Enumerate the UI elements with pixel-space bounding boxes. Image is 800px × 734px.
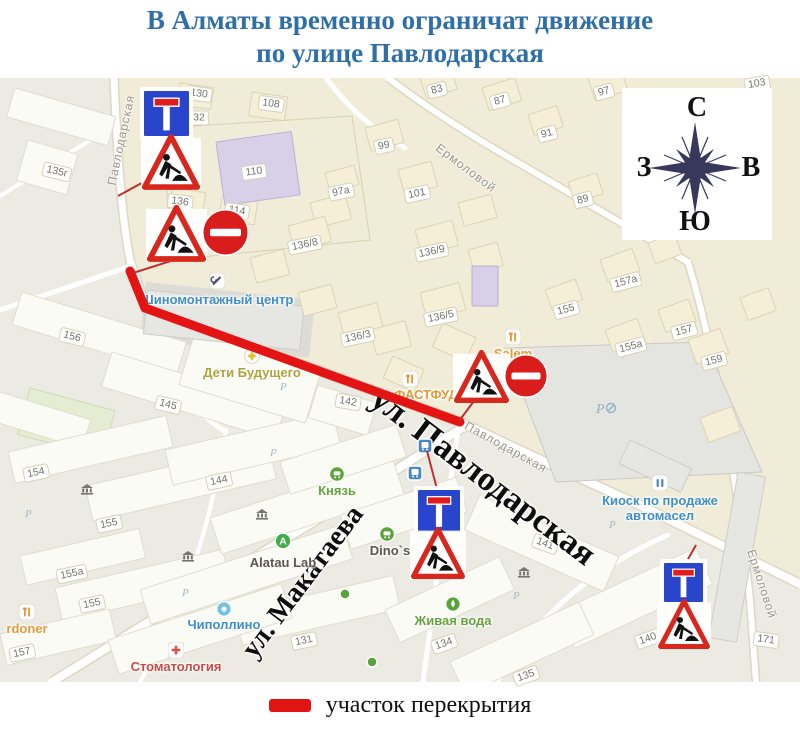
- compass-rose: С Ю З В: [622, 88, 772, 240]
- closure-swatch: [269, 699, 311, 712]
- compass-south-label: Ю: [679, 206, 711, 238]
- legend-label: участок перекрытия: [326, 692, 532, 719]
- title-line-1: В Алматы временно ограничат движение: [0, 4, 800, 37]
- infographic: В Алматы временно ограничат движение по …: [0, 0, 800, 734]
- compass-north-label: С: [687, 92, 707, 124]
- title-line-2: по улице Павлодарская: [0, 37, 800, 69]
- legend: участок перекрытия: [0, 692, 800, 719]
- page-title: В Алматы временно ограничат движение по …: [0, 4, 800, 69]
- compass-west-label: З: [637, 152, 652, 184]
- compass-east-label: В: [742, 152, 761, 184]
